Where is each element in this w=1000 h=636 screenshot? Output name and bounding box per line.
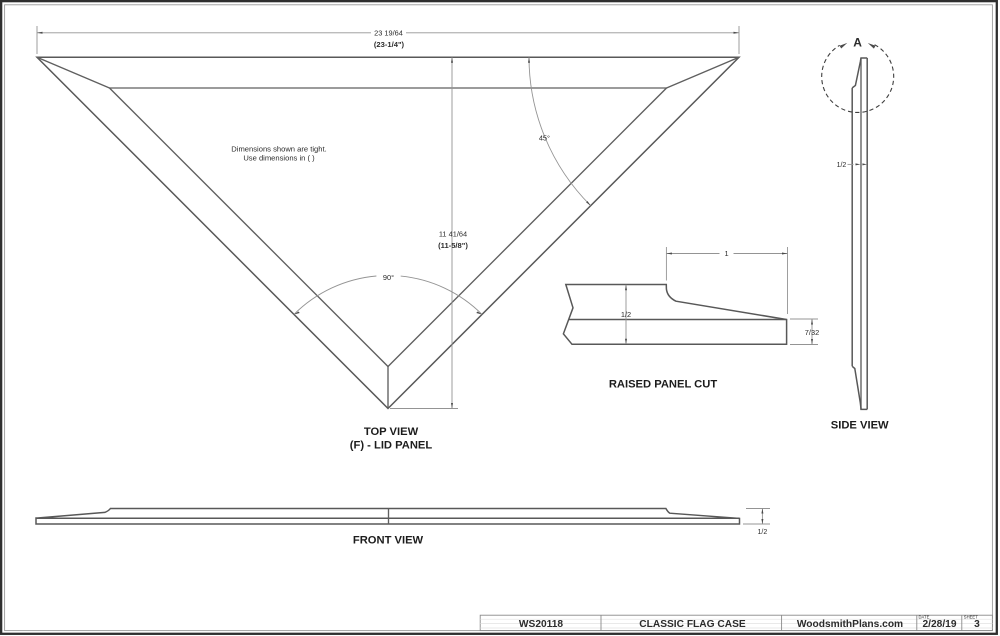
svg-text:(11-5/8"): (11-5/8")	[438, 241, 468, 250]
svg-text:RAISED PANEL CUT: RAISED PANEL CUT	[609, 378, 718, 390]
svg-text:45°: 45°	[539, 134, 550, 143]
svg-text:7/32: 7/32	[805, 328, 819, 337]
svg-text:SIDE VIEW: SIDE VIEW	[831, 419, 889, 431]
svg-text:(23-1/4"): (23-1/4")	[374, 40, 405, 49]
svg-text:TOP VIEW: TOP VIEW	[364, 426, 419, 438]
svg-text:90°: 90°	[383, 273, 394, 282]
svg-text:WS20118: WS20118	[519, 619, 564, 630]
svg-text:3: 3	[974, 619, 980, 630]
svg-text:Use dimensions in ( ): Use dimensions in ( )	[243, 154, 315, 163]
svg-text:Dimensions shown are tight.: Dimensions shown are tight.	[231, 145, 326, 154]
svg-text:(F) - LID PANEL: (F) - LID PANEL	[350, 440, 433, 452]
svg-text:A: A	[853, 36, 862, 50]
svg-text:11 41/64: 11 41/64	[439, 229, 467, 238]
svg-text:1/2: 1/2	[837, 162, 847, 169]
svg-text:23 19/64: 23 19/64	[374, 29, 403, 38]
svg-text:1/2: 1/2	[621, 310, 631, 319]
svg-text:WoodsmithPlans.com: WoodsmithPlans.com	[797, 619, 903, 630]
svg-text:1: 1	[724, 249, 728, 258]
svg-text:CLASSIC FLAG CASE: CLASSIC FLAG CASE	[639, 619, 746, 630]
svg-text:FRONT VIEW: FRONT VIEW	[353, 534, 424, 546]
svg-text:2/28/19: 2/28/19	[923, 619, 957, 630]
svg-text:1/2: 1/2	[758, 529, 768, 536]
